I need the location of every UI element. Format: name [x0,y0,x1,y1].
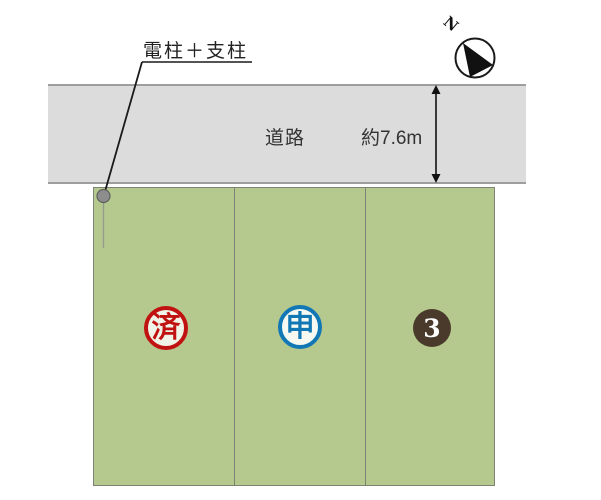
lot-number-badge: 3 [413,309,451,347]
site-plan: 電柱＋支柱 N 道路 約7.6m 済 申 3 [0,0,601,500]
status-stamp-applied: 申 [278,305,322,349]
pole-annotation-label: 電柱＋支柱 [143,36,248,63]
road-width-label: 約7.6m [361,123,422,150]
compass-north-label: N [440,13,462,36]
status-stamp-done: 済 [144,306,188,350]
road-label: 道路 [265,123,305,150]
compass-icon [456,39,495,78]
